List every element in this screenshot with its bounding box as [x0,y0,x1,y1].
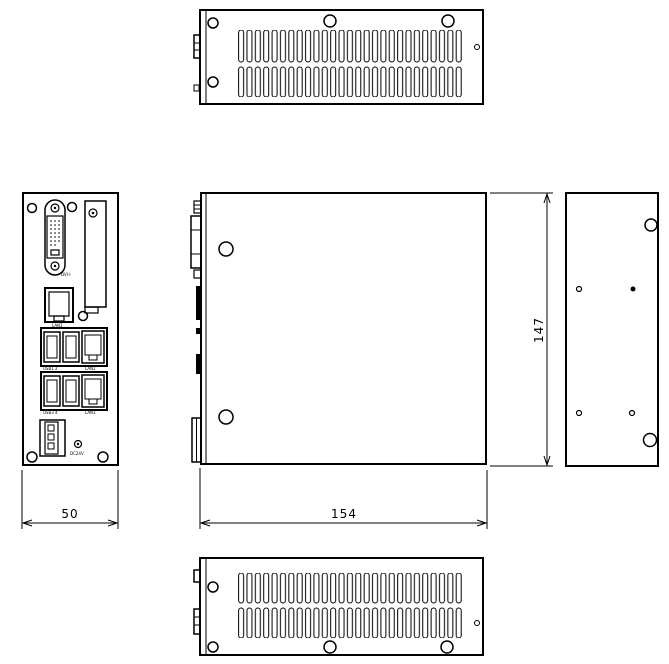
dimension-depth: 154 [200,468,487,529]
dimension-front-width: 50 [22,470,118,529]
dimension-value-147: 147 [532,317,546,343]
dimension-value-50: 50 [61,507,78,521]
technical-drawing-canvas: DVI-I LAN1 [0,0,669,664]
dimension-layer: 50 154 147 [0,0,669,664]
dimension-value-154: 154 [331,507,357,521]
dimension-height: 147 [490,193,553,466]
